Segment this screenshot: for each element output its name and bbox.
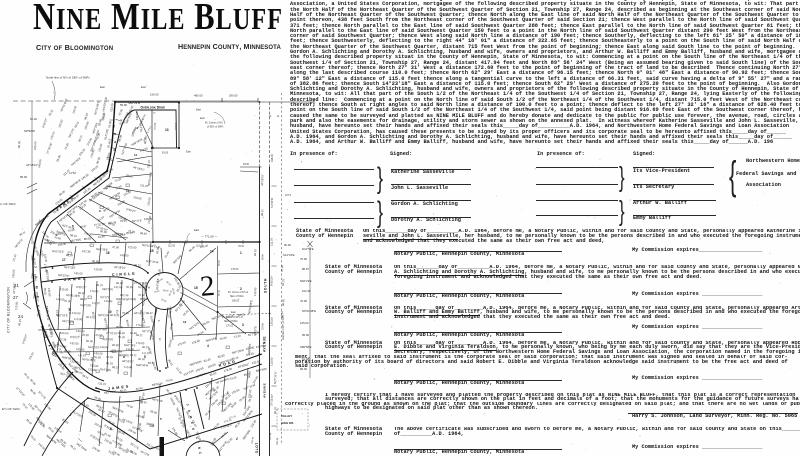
svg-text:75.00: 75.00 [122,311,129,315]
svg-text:96.15: 96.15 [17,318,22,326]
svg-text:75.00: 75.00 [280,265,284,272]
svg-text:61.40: 61.40 [30,117,37,121]
svg-text:102.36: 102.36 [82,249,91,254]
svg-text:S14°23′E: S14°23′E [183,368,195,377]
svg-text:135.00: 135.00 [104,299,113,303]
svg-text:88.97: 88.97 [302,267,309,271]
svg-text:of SE¼ of SW¼: of SE¼ of SW¼ [207,126,224,129]
svg-text:99.11: 99.11 [167,359,174,367]
svg-text:9: 9 [99,209,101,213]
svg-text:80.00: 80.00 [197,330,205,337]
svg-text:9°55′27″: 9°55′27″ [41,117,48,128]
svg-text:88.97: 88.97 [72,193,80,201]
svg-text:96.15: 96.15 [253,249,257,257]
svg-text:N62°29′E: N62°29′E [70,237,82,243]
svg-text:85.00: 85.00 [20,175,27,179]
svg-text:140.00: 140.00 [100,345,109,349]
svg-text:East: East [194,228,199,232]
svg-text:14: 14 [210,250,214,254]
svg-text:110.00: 110.00 [270,357,274,366]
svg-text:S62°29′W: S62°29′W [231,348,244,355]
svg-text:140.00: 140.00 [37,442,46,451]
svg-text:66.31: 66.31 [47,108,54,116]
svg-text:115.00: 115.00 [212,422,221,431]
svg-text:N0°01′48″E: N0°01′48″E [142,243,157,248]
svg-text:132.60: 132.60 [47,288,52,297]
svg-text:125.00: 125.00 [72,311,81,315]
svg-text:N0°01′48″E: N0°01′48″E [247,299,253,314]
svg-text:55.00: 55.00 [120,103,127,107]
svg-text:73.20: 73.20 [118,335,125,339]
svg-text:N8°52′W: N8°52′W [58,273,69,278]
svg-text:9°55′27″: 9°55′27″ [270,276,274,286]
svg-text:S62°29′W: S62°29′W [128,101,141,105]
svg-text:SE¼ of SW¼: SE¼ of SW¼ [230,295,244,298]
svg-text:105.00: 105.00 [33,141,37,150]
svg-text:85.00: 85.00 [92,259,100,264]
svg-text:11: 11 [277,116,280,118]
svg-text:66.31: 66.31 [220,431,228,439]
svg-text:196.02: 196.02 [232,301,240,303]
svg-text:95.00: 95.00 [118,331,125,335]
svg-text:140.00: 140.00 [80,172,90,180]
svg-text:125.00: 125.00 [167,339,173,349]
svg-text:27°32′16″: 27°32′16″ [270,394,274,406]
svg-text:75.00: 75.00 [300,257,307,261]
svg-text:132.60: 132.60 [103,437,113,445]
svg-text:9°55′27″: 9°55′27″ [126,207,137,213]
svg-text:176.00: 176.00 [136,323,145,327]
svg-text:27: 27 [13,295,18,300]
svg-text:102.36: 102.36 [302,289,311,293]
svg-text:S: S [36,305,40,307]
svg-text:61.40: 61.40 [130,331,137,335]
svg-text:176.00: 176.00 [136,341,145,345]
svg-text:27°32′16″: 27°32′16″ [106,331,118,335]
svg-text:75.00: 75.00 [64,299,71,303]
svg-text:99.11: 99.11 [260,209,264,216]
svg-text:N89°56′W: N89°56′W [116,297,129,301]
svg-text:11: 11 [269,116,272,118]
svg-text:176.00: 176.00 [177,340,187,347]
svg-text:99.11: 99.11 [130,353,137,357]
svg-text:99.11: 99.11 [82,373,90,380]
svg-text:105.00: 105.00 [53,426,62,435]
svg-text:135.00: 135.00 [270,317,274,326]
svg-text:135.00: 135.00 [74,271,83,276]
svg-text:17: 17 [62,258,66,262]
svg-text:S0°17′E: S0°17′E [253,326,257,336]
svg-text:92.40: 92.40 [219,289,221,296]
svg-text:105.00: 105.00 [245,345,255,351]
svg-text:95.00: 95.00 [150,409,158,415]
svg-text:S62°29′W: S62°29′W [62,319,75,323]
svg-text:55.00: 55.00 [86,339,93,343]
svg-text:80.00: 80.00 [95,156,101,164]
svg-text:N0°01′48″E: N0°01′48″E [215,377,230,385]
svg-text:2: 2 [236,437,238,441]
svg-text:44°18′01″: 44°18′01″ [26,163,38,167]
svg-text:140.00: 140.00 [76,329,85,333]
svg-text:15: 15 [194,286,198,290]
svg-text:24: 24 [18,314,23,319]
svg-text:S89°58′E: S89°58′E [118,353,130,357]
svg-text:105.00: 105.00 [57,242,66,247]
svg-text:107.5: 107.5 [285,194,292,197]
svg-text:105.00: 105.00 [146,421,156,428]
svg-text:132.60: 132.60 [191,338,201,345]
svg-text:80.00: 80.00 [84,236,92,241]
svg-text:85.00: 85.00 [143,136,148,144]
svg-text:102.36: 102.36 [108,220,117,225]
svg-text:N27°31′W: N27°31′W [138,285,151,289]
svg-text:125.00: 125.00 [94,333,103,337]
svg-text:9°55′27″: 9°55′27″ [70,335,80,339]
svg-text:4: 4 [207,344,209,348]
svg-text:70.00: 70.00 [108,419,116,426]
svg-text:61.40: 61.40 [45,306,50,314]
svg-text:45. Corner of N½ of: 45. Corner of N½ of [228,290,249,294]
svg-text:105.00: 105.00 [60,331,69,335]
svg-text:88.97: 88.97 [163,290,170,293]
svg-text:90.92: 90.92 [116,281,123,285]
svg-text:E½ OF SW¼: E½ OF SW¼ [2,407,21,411]
svg-text:150.46: 150.46 [277,437,279,445]
svg-text:95.00: 95.00 [182,309,190,317]
svg-text:S14°23′E: S14°23′E [139,120,143,132]
svg-text:East: East [186,151,191,154]
svg-text:N89°56′W: N89°56′W [189,359,202,367]
svg-text:70.00: 70.00 [82,333,89,337]
svg-text:115.00: 115.00 [216,398,225,407]
svg-text:61.40: 61.40 [203,357,211,363]
svg-text:I: I [196,442,200,444]
svg-text:M: M [35,286,39,289]
svg-text:140.00: 140.00 [135,111,139,120]
svg-text:115.00: 115.00 [27,351,35,360]
svg-text:115.00: 115.00 [253,287,257,296]
svg-text:80.00: 80.00 [17,141,21,149]
svg-text:9°55′27″: 9°55′27″ [76,285,86,289]
svg-text:175.00: 175.00 [231,268,239,271]
svg-text:N62°29′E: N62°29′E [124,343,136,347]
svg-text:2: 2 [240,287,242,291]
svg-text:80.00: 80.00 [125,319,131,327]
svg-text:N89°56′W: N89°56′W [136,363,149,367]
svg-text:N41°52′E: N41°52′E [188,321,200,331]
svg-text:99.11: 99.11 [67,307,72,315]
svg-text:N0°01′48″E: N0°01′48″E [59,98,68,113]
svg-text:90.92: 90.92 [281,299,285,307]
svg-text:105.00: 105.00 [127,105,134,115]
svg-text:East: East [231,311,236,314]
svg-text:40: 40 [153,113,156,115]
svg-text:105.00: 105.00 [76,347,85,352]
svg-text:S: S [191,428,195,431]
svg-text:¼ OF SW¼: ¼ OF SW¼ [0,202,17,206]
svg-text:119.98: 119.98 [262,322,264,330]
svg-text:88.97: 88.97 [234,421,242,429]
svg-text:66.31: 66.31 [273,407,277,414]
svg-text:290.00: 290.00 [229,94,238,98]
svg-text:73.20: 73.20 [115,184,123,191]
svg-text:S14°23′E: S14°23′E [64,265,76,270]
svg-text:111.07: 111.07 [11,253,18,262]
svg-text:44°18′01″: 44°18′01″ [237,362,249,369]
svg-text:S0°17′E: S0°17′E [132,218,142,223]
svg-text:N8°52′W: N8°52′W [24,129,35,133]
svg-text:44°18′01″: 44°18′01″ [12,282,16,294]
svg-text:27°32′16″: 27°32′16″ [94,222,106,227]
svg-text:90.92: 90.92 [42,213,50,221]
svg-text:96.15: 96.15 [140,297,147,301]
svg-text:60: 60 [158,338,160,341]
svg-text:North line of N½ of SE¼ of SW¼: North line of N½ of SE¼ of SW¼ [46,76,90,80]
svg-text:85.00: 85.00 [209,371,217,377]
svg-text:88.97: 88.97 [80,224,88,229]
svg-text:East: East [141,86,146,89]
svg-text:132.60: 132.60 [97,143,103,153]
svg-text:151.00: 151.00 [155,122,157,130]
svg-text:N62°29′E: N62°29′E [96,247,108,252]
svg-text:66.31: 66.31 [148,360,156,364]
svg-text:N0°01′48″E: N0°01′48″E [302,309,316,313]
svg-text:73.20: 73.20 [29,434,37,442]
svg-text:66.31: 66.31 [281,279,285,287]
svg-text:61.40: 61.40 [163,250,170,258]
svg-text:172.75: 172.75 [228,415,237,420]
svg-text:85.00: 85.00 [112,343,119,347]
svg-text:44°18′01″: 44°18′01″ [134,311,146,315]
svg-text:88.97: 88.97 [80,297,87,301]
svg-text:55.00: 55.00 [55,154,62,162]
svg-text:11: 11 [134,153,138,157]
svg-text:45. Corner of N½: 45. Corner of N½ [205,121,223,125]
svg-text:S14°23′E: S14°23′E [103,128,110,140]
svg-text:85.00: 85.00 [29,378,37,386]
svg-text:J: J [186,403,190,406]
svg-text:S89°58′E: S89°58′E [102,287,114,291]
svg-text:125.00: 125.00 [144,217,153,221]
svg-text:N8°52′W: N8°52′W [98,313,109,317]
svg-text:85.00: 85.00 [58,189,66,197]
svg-text:70.00: 70.00 [300,299,307,303]
svg-text:N8°52′W: N8°52′W [152,397,164,403]
svg-text:96.15: 96.15 [134,263,142,268]
svg-text:S0°17′E: S0°17′E [140,449,151,456]
svg-text:135.00: 135.00 [231,388,241,395]
svg-text:95.00: 95.00 [302,333,309,337]
svg-text:85.00: 85.00 [116,325,123,329]
svg-text:N27°31′W: N27°31′W [146,259,159,264]
svg-text:DLOT: DLOT [255,442,259,453]
svg-text:135.00: 135.00 [146,197,152,207]
svg-text:N89°56′W: N89°56′W [69,178,82,189]
svg-text:N89°56′W: N89°56′W [45,434,57,445]
svg-text:135.00: 135.00 [78,147,87,156]
svg-text:88.97: 88.97 [140,231,148,236]
svg-text:N62°29′E: N62°29′E [45,270,50,282]
svg-text:7: 7 [70,413,72,417]
svg-text:15: 15 [150,249,154,253]
svg-text:115.00: 115.00 [71,105,78,115]
svg-text:S89°58′E: S89°58′E [96,327,108,331]
svg-text:110.00: 110.00 [94,267,103,272]
svg-text:N0°01′48″E: N0°01′48″E [93,100,101,115]
svg-text:96.15: 96.15 [247,370,252,378]
svg-text:95.00: 95.00 [126,231,133,235]
svg-text:176.00: 176.00 [49,131,56,141]
svg-text:110.00: 110.00 [14,301,19,310]
svg-text:S14°23′E: S14°23′E [72,409,84,418]
svg-text:44°18′01″: 44°18′01″ [114,265,126,270]
svg-text:S89°58′E: S89°58′E [255,367,267,373]
svg-text:60.00: 60.00 [219,259,221,266]
svg-text:110.00: 110.00 [88,367,97,372]
svg-text:CITY OF BLOOMINGTON: CITY OF BLOOMINGTON [7,287,11,333]
svg-text:73.20: 73.20 [103,96,108,104]
svg-text:27°32′16″: 27°32′16″ [15,386,26,397]
svg-text:176.00: 176.00 [92,445,102,453]
svg-text:S 79°48′ E: S 79°48′ E [220,424,232,430]
svg-text:176.00: 176.00 [171,427,179,437]
svg-text:90.92: 90.92 [110,313,117,317]
svg-text:99.11: 99.11 [19,230,27,237]
svg-text:111.07: 111.07 [92,301,101,305]
svg-text:N41°52′E: N41°52′E [88,345,100,349]
svg-text:70.00: 70.00 [169,322,174,330]
svg-text:S14°23′E: S14°23′E [100,367,112,372]
svg-text:9°55′27″: 9°55′27″ [21,333,28,344]
svg-text:125.00: 125.00 [173,277,181,287]
svg-text:9°55′27″: 9°55′27″ [35,292,40,303]
svg-text:80.00: 80.00 [188,245,196,253]
svg-text:90.92: 90.92 [138,357,145,361]
svg-text:5: 5 [160,417,162,421]
svg-text:115.00: 115.00 [74,317,83,321]
svg-text:135.00: 135.00 [11,269,16,278]
svg-text:99.11: 99.11 [136,333,143,337]
svg-text:70.00: 70.00 [157,268,162,276]
svg-text:S14°23′E: S14°23′E [155,278,160,290]
svg-text:80.00: 80.00 [300,367,307,371]
svg-text:55.00: 55.00 [94,355,102,359]
svg-text:S0°17′E: S0°17′E [37,390,47,400]
svg-text:55.00: 55.00 [219,335,227,341]
svg-text:S89°58′E: S89°58′E [242,429,252,441]
svg-text:66.31: 66.31 [70,233,78,238]
svg-text:125.00: 125.00 [43,253,48,262]
svg-text:115.00: 115.00 [124,365,133,369]
svg-text:96.15: 96.15 [112,365,120,369]
svg-text:99.98: 99.98 [262,253,264,260]
svg-text:S14°23′E: S14°23′E [80,303,92,307]
svg-text:96.15: 96.15 [83,112,89,120]
svg-text:N41°52′E: N41°52′E [70,156,82,167]
svg-text:85.00: 85.00 [78,291,85,295]
svg-text:132.60: 132.60 [114,285,123,289]
svg-text:115.00: 115.00 [84,231,93,237]
svg-text:115.00: 115.00 [60,287,69,292]
svg-text:N89°56′W: N89°56′W [131,137,144,147]
svg-text:S89°58′E: S89°58′E [300,345,312,349]
svg-text:153.00: 153.00 [176,122,178,130]
svg-text:75.00: 75.00 [126,403,134,409]
svg-text:75.00: 75.00 [154,290,161,294]
svg-text:S62°29′W: S62°29′W [75,442,88,453]
svg-text:96.15: 96.15 [165,281,171,287]
svg-text:N41°52′E: N41°52′E [302,247,314,251]
svg-text:N27°31′W: N27°31′W [218,440,229,453]
svg-text:111.07: 111.07 [270,237,274,246]
svg-text:70.00: 70.00 [117,108,124,116]
svg-text:East: East [196,109,201,112]
svg-text:S14°23′E: S14°23′E [102,337,114,341]
svg-text:99.11: 99.11 [73,120,80,128]
svg-text:480.00: 480.00 [194,94,203,98]
svg-text:N0°01′48″E: N0°01′48″E [147,171,153,186]
svg-text:125.00: 125.00 [128,245,137,250]
svg-text:73.20: 73.20 [179,403,186,411]
svg-text:J: J [34,266,38,269]
svg-text:176.00: 176.00 [90,289,99,293]
svg-text:95.00: 95.00 [77,134,83,142]
svg-text:132.60: 132.60 [57,119,64,129]
svg-text:East: East [100,86,105,89]
svg-text:90.92: 90.92 [284,243,291,247]
svg-text:75.00: 75.00 [165,378,173,383]
svg-text:140.00: 140.00 [37,159,42,168]
svg-text:N62°29′E: N62°29′E [300,279,312,283]
svg-text:R: R [112,124,116,128]
svg-text:95.00: 95.00 [43,288,47,296]
svg-text:53.00: 53.00 [243,163,250,166]
svg-text:110.00: 110.00 [207,362,216,368]
svg-text:N8°52′W: N8°52′W [14,238,24,249]
svg-text:2: 2 [199,270,216,303]
svg-text:96.15: 96.15 [231,355,239,361]
svg-text:80.00: 80.00 [217,353,225,359]
svg-text:125.00: 125.00 [300,321,309,325]
svg-text:99.11: 99.11 [126,173,134,179]
svg-text:VALLEY: VALLEY [281,414,292,418]
svg-text:102.36: 102.36 [58,337,67,342]
svg-text:B: B [157,320,160,322]
svg-text:81.00: 81.00 [162,152,169,155]
svg-text:S0°17′E: S0°17′E [142,329,152,333]
svg-text:73.20: 73.20 [229,375,237,381]
svg-text:190.00: 190.00 [150,93,159,97]
svg-text:55.00: 55.00 [165,388,173,396]
svg-text:90.92: 90.92 [100,229,108,234]
svg-text:S0°17′E: S0°17′E [100,295,110,299]
svg-text:125.00: 125.00 [83,121,90,131]
svg-text:East: East [200,117,205,120]
svg-text:111.07: 111.07 [96,215,105,223]
svg-text:88.97: 88.97 [280,311,284,318]
svg-text:132.60: 132.60 [70,341,79,346]
svg-text:44°18′01″: 44°18′01″ [122,359,134,363]
svg-text:1: 1 [240,251,242,255]
svg-text:S0°17′E: S0°17′E [67,128,75,139]
svg-text:HIGH DR.: HIGH DR. [281,421,294,425]
svg-text:111.07: 111.07 [142,351,151,355]
svg-text:90.92: 90.92 [29,388,37,396]
svg-text:85.00: 85.00 [238,312,246,317]
svg-text:S14°23′E: S14°23′E [283,253,295,257]
svg-text:55.00: 55.00 [126,285,133,289]
svg-text:90.92: 90.92 [161,299,168,304]
